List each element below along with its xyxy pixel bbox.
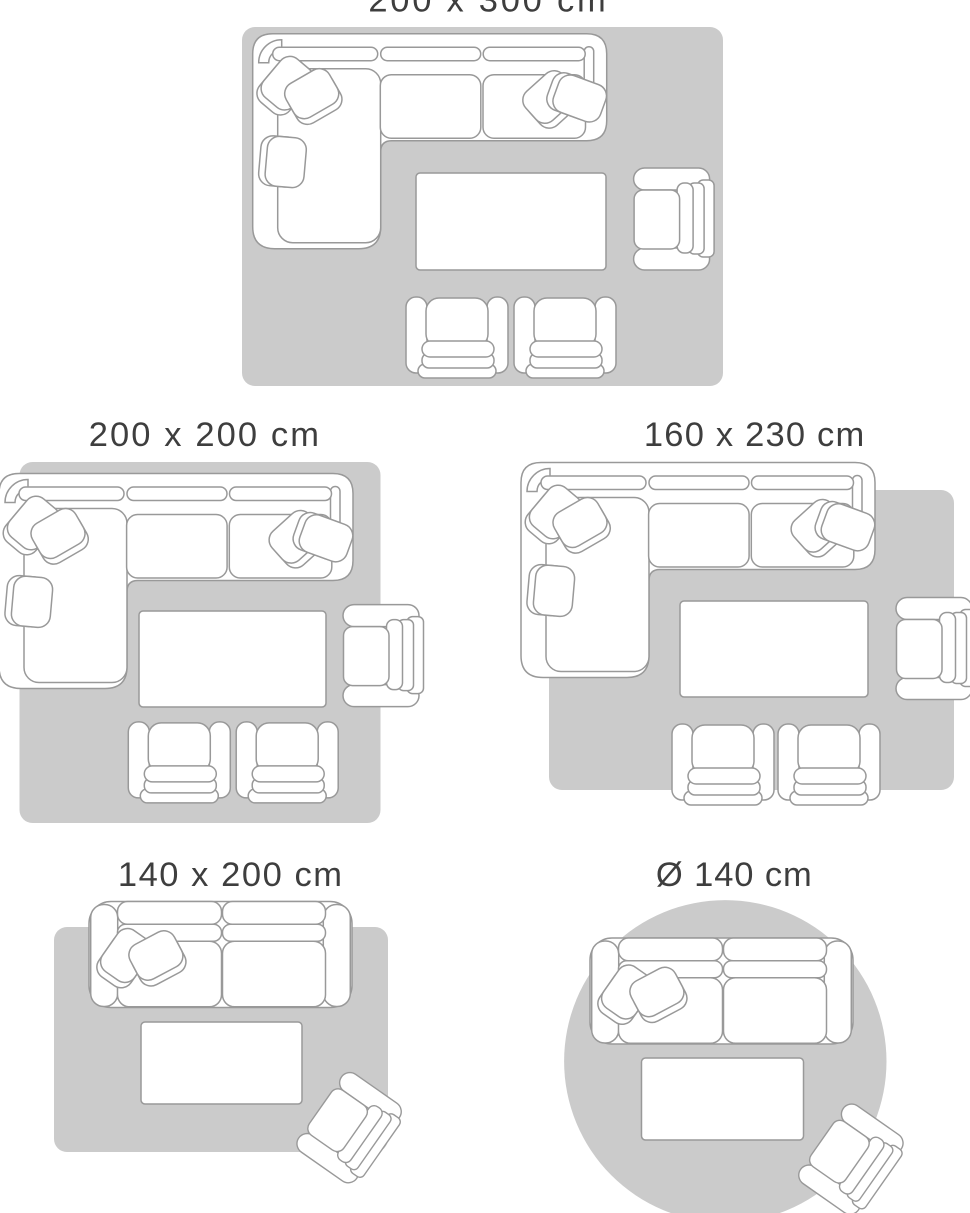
svg-text:160 x 230 cm: 160 x 230 cm bbox=[644, 416, 866, 454]
svg-text:140 x 200 cm: 140 x 200 cm bbox=[118, 856, 344, 894]
svg-text:Ø 140 cm: Ø 140 cm bbox=[656, 856, 813, 894]
svg-text:200 x 200 cm: 200 x 200 cm bbox=[89, 416, 321, 454]
svg-text:200 x 300 cm: 200 x 300 cm bbox=[368, 0, 608, 20]
